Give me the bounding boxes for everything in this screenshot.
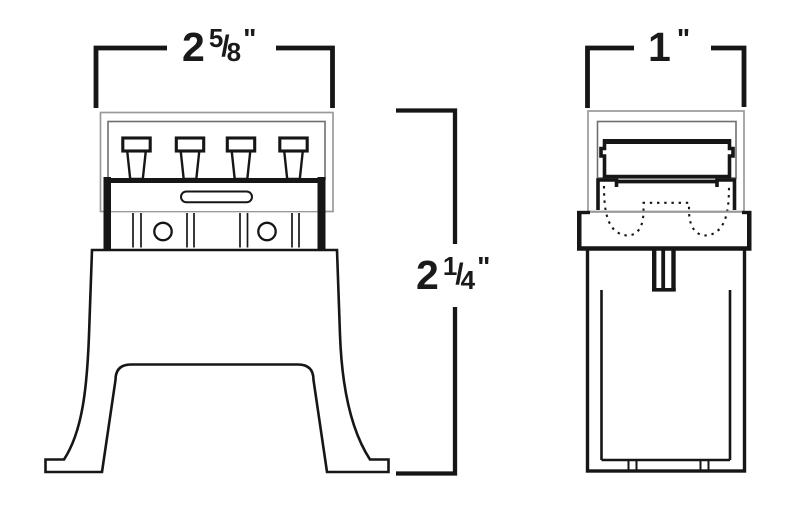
front-width-dim-left-bracket <box>96 48 167 108</box>
fuse-4-cap <box>280 138 307 151</box>
side-width-dimension-label: 1" <box>648 25 688 68</box>
side-view <box>577 111 752 471</box>
fuse-profile <box>601 141 733 177</box>
front-view <box>46 113 389 473</box>
right-flange-bar <box>747 211 752 250</box>
height-whole: 2 <box>416 252 439 298</box>
front-pedestal-base <box>46 250 389 472</box>
height-denominator: 4 <box>461 265 475 295</box>
label-slot <box>181 192 252 203</box>
fuse-terminals <box>123 138 307 179</box>
fuse-4-body <box>284 151 303 179</box>
left-side-post <box>104 177 112 250</box>
left-flange-bar <box>577 211 582 250</box>
side-width-whole: 1 <box>648 24 671 70</box>
height-inch-mark: " <box>477 251 488 282</box>
left-mounting-hole <box>154 223 171 240</box>
fuse-block-technical-drawing: 25/8" 1" 21/4" <box>0 0 800 520</box>
fuse-2-body <box>181 151 200 179</box>
side-width-dim-left-bracket <box>588 48 635 108</box>
side-width-dim-right-bracket <box>711 48 744 107</box>
front-width-denominator: 8 <box>227 37 241 67</box>
height-dimension-label: 21/4" <box>416 253 488 296</box>
front-width-whole: 2 <box>182 24 205 70</box>
front-width-inch-mark: " <box>243 23 254 54</box>
fuse-3-cap <box>227 138 254 151</box>
right-side-post <box>318 177 326 250</box>
fuse-3-body <box>232 151 251 179</box>
right-mounting-hole <box>258 223 275 240</box>
drawing-canvas <box>0 0 800 520</box>
blade-terminal <box>652 250 676 292</box>
front-width-dim-right-bracket <box>276 48 333 108</box>
fuse-1-body <box>127 151 146 179</box>
front-width-dimension-label: 25/8" <box>182 25 254 68</box>
height-dim-bottom-segment <box>396 307 455 474</box>
lower-housing <box>588 249 745 472</box>
height-dim-top-segment <box>396 111 455 245</box>
fuse-1-cap <box>123 138 150 151</box>
side-width-inch-mark: " <box>677 23 688 54</box>
fuse-2-cap <box>176 138 203 151</box>
